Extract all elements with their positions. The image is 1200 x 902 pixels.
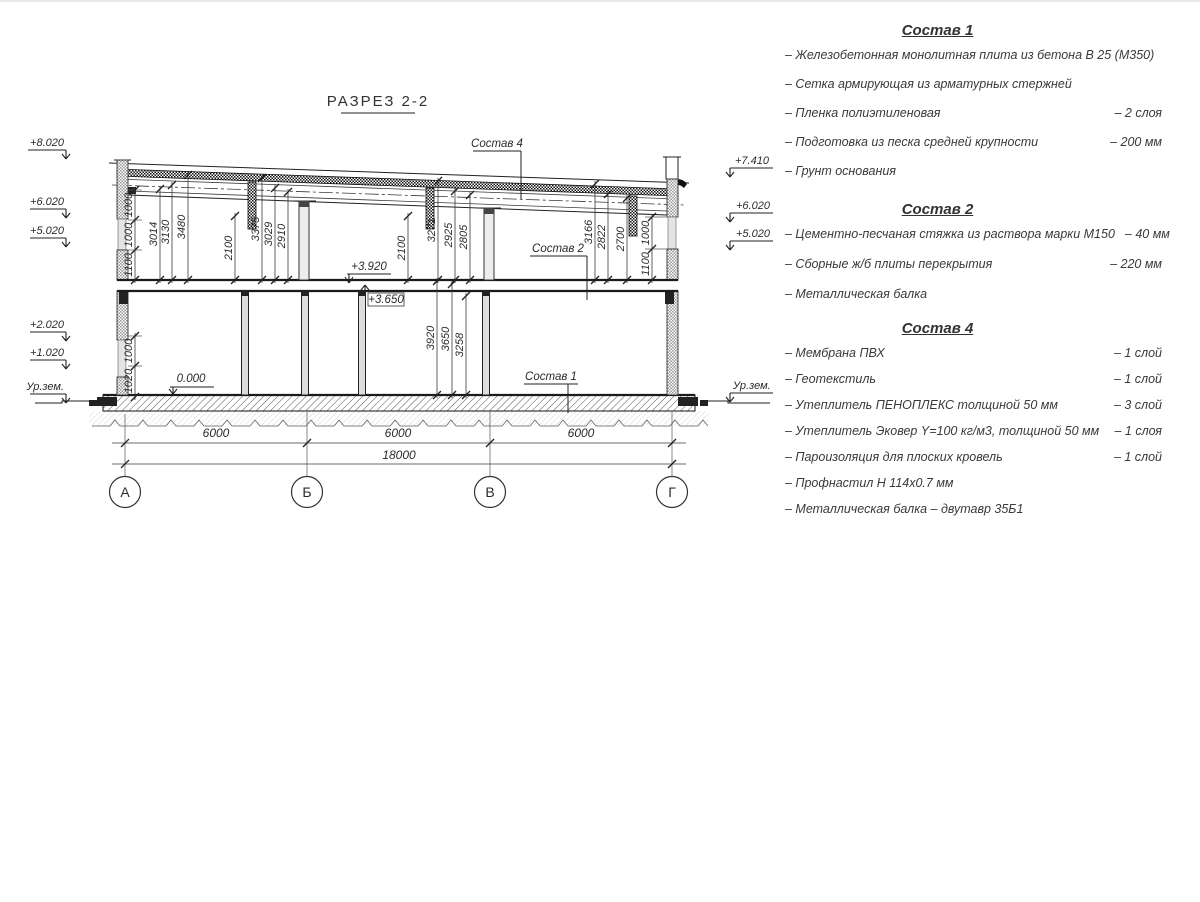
dim-3258: 3258: [454, 292, 470, 399]
svg-text:3375: 3375: [250, 216, 262, 241]
legend-item: – Грунт основания: [785, 164, 1162, 179]
axis-A: А: [120, 484, 130, 500]
svg-text:1000: 1000: [123, 338, 135, 363]
elev-left-0: +8.020: [30, 137, 65, 149]
callout-sostav1: Состав 1: [525, 371, 577, 383]
legend-item: – Мембрана ПВХ– 1 слой: [785, 346, 1162, 361]
column-lower: [302, 291, 309, 395]
roof: [109, 163, 689, 215]
callout-sostav2: Состав 2: [532, 243, 584, 255]
callout-sostav4: Состав 4: [471, 138, 523, 150]
svg-text:3166: 3166: [583, 219, 595, 244]
ground-level-line-right: [700, 401, 770, 403]
axis-G: Г: [668, 484, 676, 500]
svg-text:1020: 1020: [123, 368, 135, 393]
beam-stub: [629, 196, 637, 236]
svg-text:1100: 1100: [640, 251, 652, 276]
elev-right-1: +6.020: [736, 200, 771, 212]
column-lower: [242, 291, 249, 395]
svg-text:1000: 1000: [640, 220, 652, 245]
materials-legend: Состав 1 – Железобетонная монолитная пли…: [785, 2, 1170, 542]
elev-0000: 0.000: [177, 373, 206, 385]
dim-6000-3: 6000: [568, 426, 595, 440]
legend-item: – Пароизоляция для плоских кровель– 1 сл…: [785, 450, 1162, 465]
legend-block-sostav2: Состав 2 – Цементно-песчаная стяжка из р…: [785, 201, 1170, 302]
svg-text:1100: 1100: [123, 252, 135, 277]
legend-item: – Сборные ж/б плиты перекрытия– 220 мм: [785, 257, 1162, 272]
ground-soil: [89, 411, 709, 426]
legend-item: – Металлическая балка: [785, 287, 1162, 302]
elev-right-2: +5.020: [736, 228, 771, 240]
legend-title: Состав 2: [785, 201, 1170, 218]
elevation-marks-left: +8.020 +6.020 +5.020 +2.020 +1.020 Ур.зе…: [25, 137, 70, 403]
elev-left-4: +1.020: [30, 347, 65, 359]
legend-block-sostav1: Состав 1 – Железобетонная монолитная пли…: [785, 22, 1170, 179]
dim-2822: 2822: [596, 190, 612, 284]
dim-3920: 3920: [425, 277, 441, 399]
elev-right-0: +7.410: [735, 155, 770, 167]
svg-text:3920: 3920: [425, 325, 437, 350]
legend-item: – Утеплитель Эковер Y=100 кг/м3, толщино…: [785, 424, 1162, 439]
axis-bubbles: А Б В Г: [110, 477, 688, 508]
drawing-title: РАЗРЕЗ 2-2: [327, 93, 430, 113]
dim-2925: 2925: [443, 187, 459, 284]
legend-item: – Утеплитель ПЕНОПЛЕКС толщиной 50 мм– 3…: [785, 398, 1162, 413]
dim-chain-left-upper: 1000 1000 1100: [123, 186, 139, 284]
elev-left-2: +5.020: [30, 225, 65, 237]
dim-2100-b: 2100: [396, 212, 412, 284]
section-title: РАЗРЕЗ 2-2: [327, 93, 430, 110]
legend-item: – Цементно-песчаная стяжка из раствора м…: [785, 227, 1162, 242]
legend-block-sostav4: Состав 4 – Мембрана ПВХ– 1 слой – Геотек…: [785, 320, 1170, 517]
dim-18000: 18000: [382, 448, 416, 462]
dim-2910: 2910: [276, 188, 292, 284]
svg-text:3650: 3650: [440, 326, 452, 351]
column-upper-V: [484, 208, 494, 280]
elev-3920: +3.920: [351, 261, 387, 273]
dim-6000-1: 6000: [203, 426, 230, 440]
elev-3650: +3.650: [368, 294, 404, 306]
column-upper-B: [299, 201, 309, 280]
dim-2805: 2805: [458, 191, 474, 284]
svg-text:3271: 3271: [426, 218, 438, 242]
legend-item: – Подготовка из песка средней крупности–…: [785, 135, 1162, 150]
axis-B: Б: [302, 484, 311, 500]
ground-slab: [35, 395, 770, 411]
legend-item: – Пленка полиэтиленовая– 2 слоя: [785, 106, 1162, 121]
svg-text:3258: 3258: [454, 332, 466, 357]
dim-6000-2: 6000: [385, 426, 412, 440]
legend-item: – Профнастил Н 114х0.7 мм: [785, 476, 1162, 491]
svg-text:3130: 3130: [160, 219, 172, 244]
svg-text:1000: 1000: [123, 192, 135, 217]
svg-text:2100: 2100: [396, 235, 408, 261]
elev-right-3: Ур.зем.: [732, 380, 771, 392]
column-lower: [359, 291, 366, 395]
dims-lower: 1000 1020 3920 3650 3258: [123, 277, 470, 401]
svg-text:2805: 2805: [458, 224, 470, 250]
elev-left-1: +6.020: [30, 196, 65, 208]
svg-text:2822: 2822: [596, 225, 608, 250]
elev-left-3: +2.020: [30, 319, 65, 331]
legend-title: Состав 1: [785, 22, 1170, 39]
legend-item: – Железобетонная монолитная плита из бет…: [785, 48, 1162, 63]
elev-left-5: Ур.зем.: [25, 381, 64, 393]
dim-2700: 2700: [615, 194, 631, 284]
column-lower: [483, 291, 490, 395]
svg-text:2100: 2100: [223, 235, 235, 261]
svg-text:2910: 2910: [276, 223, 288, 249]
drawing-sheet: РАЗРЕЗ 2-2: [0, 0, 1200, 902]
svg-text:3480: 3480: [176, 214, 188, 239]
legend-item: – Геотекстиль– 1 слой: [785, 372, 1162, 387]
svg-text:3014: 3014: [148, 222, 160, 246]
legend-title: Состав 4: [785, 320, 1170, 337]
svg-text:2700: 2700: [615, 226, 627, 252]
legend-item: – Металлическая балка – двутавр 35Б1: [785, 502, 1162, 517]
right-parapet: [666, 157, 678, 179]
svg-text:1000: 1000: [123, 222, 135, 247]
legend-item: – Сетка армирующая из арматурных стержне…: [785, 77, 1162, 92]
dim-chain-right-upper: 1000 1100: [640, 213, 656, 284]
dim-2100-a: 2100: [223, 212, 239, 284]
axis-V: В: [485, 484, 494, 500]
svg-text:3029: 3029: [263, 222, 275, 246]
svg-text:2925: 2925: [443, 222, 455, 248]
window-right-upper: [668, 217, 676, 249]
elevation-marks-right: +7.410 +6.020 +5.020 Ур.зем.: [726, 155, 773, 402]
